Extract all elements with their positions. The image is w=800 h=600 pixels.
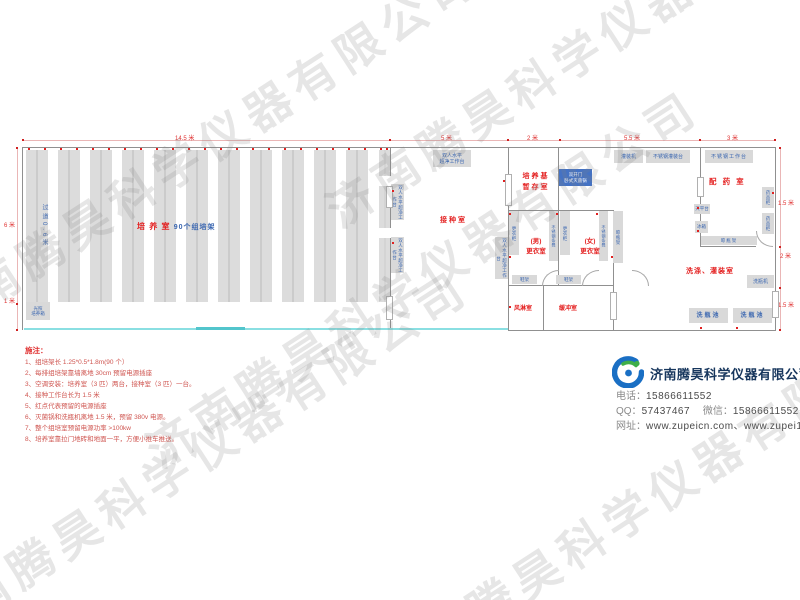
bottle-drying-rack: 晾瓶架 — [613, 211, 623, 263]
power-outlet-dot — [284, 148, 286, 150]
watermark-text: 济南腾昊科学仪器有限公司 — [362, 292, 800, 600]
door-slider — [505, 174, 512, 206]
culture-room-name: 培 养 室 — [137, 222, 170, 231]
note-line: 5、红点代表预留的电源插座 — [25, 401, 265, 412]
wall-dressing-divider — [558, 147, 559, 286]
note-line: 1、组培架长 1.25*0.5*1.8m(90 个） — [25, 357, 265, 368]
qq-wechat-line: QQ：57437467 微信：15866611552 — [616, 402, 799, 417]
power-outlet-dot — [386, 148, 388, 150]
dimension-label: 1 米 — [4, 299, 15, 305]
power-outlet-dot — [204, 148, 206, 150]
aisle-label: 过道0.6米 — [40, 204, 49, 270]
note-line: 4、接种工作台长为 1.5 米 — [25, 390, 265, 401]
dim-tick — [779, 287, 781, 289]
power-outlet-dot — [44, 148, 46, 150]
company-logo-icon — [612, 356, 644, 388]
shoe-rack: 鞋架 — [512, 275, 537, 284]
filling-machine: 灌装机 — [614, 150, 643, 163]
washing-sink: 洗瓶池 — [733, 308, 772, 323]
women-label-1: (女) — [573, 237, 607, 247]
power-outlet-dot — [140, 148, 142, 150]
power-outlet-dot — [252, 148, 254, 150]
women-dressing-room-label: (女) 更衣室 — [573, 237, 607, 257]
culture-rack-column — [58, 150, 80, 302]
light-incubator-label-2: 培养箱 — [31, 311, 45, 317]
dimension-label: 1.5 米 — [778, 201, 794, 207]
clean-bench: 双人水平 超净工作台 — [433, 150, 471, 167]
power-outlet-dot — [509, 213, 511, 215]
sliding-door-track — [24, 328, 508, 330]
men-label-2: 更衣室 — [519, 247, 553, 257]
sterilizer-label-2: 卧式灭菌锅 — [564, 178, 587, 184]
power-outlet-dot — [300, 148, 302, 150]
website-line: 网址：www.zupeicn.com、www.zupei17.com — [616, 417, 800, 432]
clean-bench: 双人水平超净工作台 — [495, 237, 508, 279]
locker: 更衣柜 — [509, 211, 519, 255]
door-slider — [610, 292, 617, 320]
dim-tick — [779, 147, 781, 149]
top-dimension-line — [22, 140, 775, 141]
culture-rack-column — [282, 150, 304, 302]
power-outlet-dot — [596, 213, 598, 215]
power-outlet-dot — [697, 207, 699, 209]
note-line: 8、培养室靠拉门地砖和地面一平，方便小推车推送。 — [25, 434, 265, 445]
notes-title: 施注： — [25, 345, 265, 356]
dimension-label: 1.5 米 — [778, 303, 794, 309]
men-dressing-room-label: (男) 更衣室 — [519, 237, 553, 257]
light-incubator: 光照 培养箱 — [26, 302, 50, 320]
bottle-drying-rack: 晾瓶架 — [701, 236, 757, 245]
note-line: 7、整个组培室预留电源功率 >100kw — [25, 423, 265, 434]
clean-bench-label-2: 超净工作台 — [439, 159, 464, 165]
power-outlet-dot — [772, 192, 774, 194]
culture-rack-column — [90, 150, 112, 302]
power-outlet-dot — [392, 242, 394, 244]
dim-tick — [779, 329, 781, 331]
door-arc — [582, 270, 599, 286]
power-outlet-dot — [28, 148, 30, 150]
wall-bottom — [508, 330, 776, 331]
dimension-label: 2 米 — [780, 254, 791, 260]
dim-tick — [16, 329, 18, 331]
culture-rack-column — [218, 150, 240, 302]
power-outlet-dot — [156, 148, 158, 150]
door-slider — [386, 296, 393, 320]
locker: 更衣柜 — [560, 211, 570, 255]
wall-door-gap — [379, 228, 391, 238]
floor-plan-drawing: 14.5 米 5 米 2 米 5.5 米 3 米 6 米 1 米 1.5 米 2… — [0, 0, 800, 600]
medium-storage-label-1: 培养基 — [512, 171, 560, 182]
power-outlet-dot — [556, 213, 558, 215]
notes-block: 施注： 1、组培架长 1.25*0.5*1.8m(90 个） 2、每排组培架靠墙… — [25, 345, 265, 445]
men-label-1: (男) — [519, 237, 553, 247]
dimension-label: 6 米 — [4, 223, 15, 229]
phone-line: 电话：15866611552 — [616, 387, 712, 402]
power-outlet-dot — [124, 148, 126, 150]
dimension-label: 3 米 — [727, 136, 738, 142]
power-outlet-dot — [108, 148, 110, 150]
wall-dispensing-bottom — [700, 246, 756, 247]
phone-value: 15866611552 — [646, 391, 712, 402]
power-outlet-dot — [332, 148, 334, 150]
dim-tick — [507, 139, 509, 141]
medium-storage-label-2: 暂存室 — [512, 182, 560, 193]
power-outlet-dot — [92, 148, 94, 150]
power-outlet-dot — [503, 180, 505, 182]
dim-tick — [559, 139, 561, 141]
wall-left — [22, 147, 23, 330]
qq-label: QQ： — [616, 406, 642, 417]
door-arc — [632, 270, 649, 286]
balance-table: 天平台 — [694, 204, 710, 214]
power-outlet-dot — [509, 256, 511, 258]
website-value: www.zupeicn.com、www.zupei17.com — [646, 421, 800, 432]
air-shower-label: 风淋室 — [514, 303, 532, 312]
power-outlet-dot — [76, 148, 78, 150]
company-name: 济南腾昊科学仪器有限公司 — [650, 364, 800, 383]
power-outlet-dot — [697, 230, 699, 232]
power-outlet-dot — [392, 190, 394, 192]
power-outlet-dot — [316, 148, 318, 150]
dimension-label: 2 米 — [527, 136, 538, 142]
sliding-door-leaf — [196, 327, 245, 330]
culture-room-label: 培 养 室 90个组培架 — [137, 221, 215, 232]
culture-rack-column — [314, 150, 336, 302]
culture-rack-column — [346, 150, 368, 302]
medicine-cabinet: 药品柜 — [762, 187, 774, 208]
wall-door-gap — [379, 176, 391, 186]
dim-tick — [779, 246, 781, 248]
dim-tick — [774, 139, 776, 141]
shoe-rack: 鞋架 — [556, 275, 581, 284]
door-slider — [697, 177, 704, 197]
power-outlet-dot — [236, 148, 238, 150]
door-slider — [772, 291, 779, 318]
note-line: 3、空调安装：培养室（3 匹）两台，接种室（3 匹）一台。 — [25, 379, 265, 390]
washing-sink: 洗瓶池 — [689, 308, 728, 323]
note-line: 6、灭菌锅和洗瓶机离地 1.5 米，预留 380v 电源。 — [25, 412, 265, 423]
dim-tick — [389, 139, 391, 141]
note-line: 2、每排组培架靠墙离地 30cm 预留电源插座 — [25, 368, 265, 379]
wall-airshower-right — [543, 285, 544, 330]
power-outlet-dot — [348, 148, 350, 150]
dimension-label: 5.5 米 — [624, 136, 640, 142]
bottle-washer: 洗瓶机 — [747, 275, 774, 288]
wechat-label: 微信： — [703, 406, 733, 417]
dispensing-room-label: 配 药 室 — [709, 176, 746, 187]
dim-tick — [16, 303, 18, 305]
power-outlet-dot — [172, 148, 174, 150]
culture-rack-column — [250, 150, 272, 302]
power-outlet-dot — [220, 148, 222, 150]
buffer-room-label: 缓冲室 — [559, 303, 577, 312]
power-outlet-dot — [268, 148, 270, 150]
women-label-2: 更衣室 — [573, 247, 607, 257]
work-table: 不锈钢工作台 — [705, 150, 753, 163]
power-outlet-dot — [60, 148, 62, 150]
power-outlet-dot — [611, 256, 613, 258]
power-outlet-dot — [364, 148, 366, 150]
dim-tick — [16, 147, 18, 149]
phone-label: 电话： — [616, 391, 646, 402]
medium-storage-room-label: 培养基 暂存室 — [512, 171, 560, 193]
dimension-label: 14.5 米 — [175, 136, 194, 142]
filling-table: 不锈钢灌装台 — [646, 150, 690, 163]
dim-tick — [699, 139, 701, 141]
wall-top — [22, 147, 775, 148]
power-outlet-dot — [700, 327, 702, 329]
power-outlet-dot — [188, 148, 190, 150]
culture-room-rack-count: 90个组培架 — [174, 224, 216, 231]
power-outlet-dot — [509, 306, 511, 308]
inoculation-room-label: 接种室 — [440, 215, 467, 225]
door-arc — [756, 231, 773, 247]
power-outlet-dot — [736, 327, 738, 329]
qq-value: 57437467 — [642, 406, 691, 417]
sterilizer: 双开门 卧式灭菌锅 — [559, 169, 592, 186]
website-label: 网址： — [616, 421, 646, 432]
dim-tick — [22, 139, 24, 141]
door-arc — [542, 270, 559, 286]
power-outlet-dot — [380, 148, 382, 150]
washing-room-label: 洗涤、灌装室 — [686, 266, 734, 276]
wechat-value: 15866611552 — [733, 406, 799, 417]
dimension-label: 5 米 — [441, 136, 452, 142]
